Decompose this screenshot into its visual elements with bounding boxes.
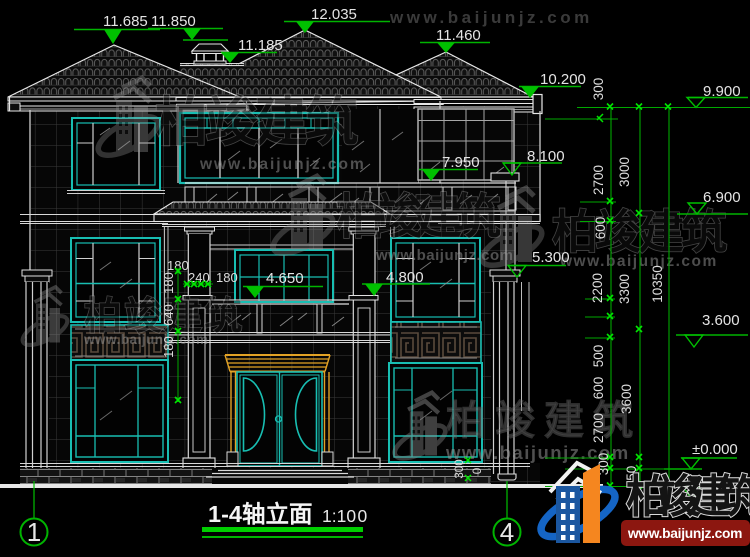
svg-text:300: 300	[591, 78, 606, 101]
svg-text:180: 180	[161, 336, 176, 358]
svg-text:640: 640	[161, 304, 176, 326]
svg-text:www.baijunjz.com: www.baijunjz.com	[375, 247, 513, 264]
svg-text:2700: 2700	[591, 165, 606, 195]
svg-text:www.baijunjz.com: www.baijunjz.com	[83, 332, 209, 347]
svg-text:4: 4	[500, 517, 514, 547]
svg-text:10.200: 10.200	[540, 71, 586, 88]
svg-text:10350: 10350	[650, 265, 665, 303]
svg-text:www.baijunjz.com: www.baijunjz.com	[199, 156, 366, 173]
svg-text:www.baijunjz.com: www.baijunjz.com	[559, 253, 718, 270]
svg-text:11.685: 11.685	[103, 13, 148, 30]
svg-text:柏竣建筑: 柏竣建筑	[626, 471, 750, 522]
svg-text:5.300: 5.300	[532, 249, 570, 266]
svg-text:600: 600	[591, 377, 606, 400]
svg-text:6.900: 6.900	[703, 189, 741, 206]
svg-text:www.baijunjz.com: www.baijunjz.com	[627, 526, 742, 541]
svg-text:3.600: 3.600	[702, 312, 740, 329]
svg-text:3300: 3300	[617, 274, 632, 304]
svg-text:600: 600	[593, 217, 608, 240]
svg-text:柏竣建筑: 柏竣建筑	[336, 191, 501, 244]
svg-text:11.460: 11.460	[436, 27, 481, 44]
svg-text:7.950: 7.950	[442, 154, 480, 171]
svg-text:柏竣建筑: 柏竣建筑	[446, 399, 642, 443]
svg-text:180: 180	[216, 270, 238, 285]
svg-text:www.baijunjz.com: www.baijunjz.com	[389, 8, 593, 27]
svg-text:1:10 0: 1:10 0	[322, 506, 368, 526]
svg-text:4.650: 4.650	[266, 270, 304, 287]
svg-text:11.850: 11.850	[151, 13, 196, 30]
svg-text:180: 180	[161, 272, 176, 294]
svg-text:3600: 3600	[619, 384, 634, 414]
svg-text:1: 1	[27, 517, 41, 547]
svg-text:0: 0	[472, 468, 484, 474]
svg-text:柏竣建筑: 柏竣建筑	[155, 93, 358, 152]
svg-text:3000: 3000	[617, 157, 632, 187]
svg-text:2700: 2700	[591, 413, 606, 443]
svg-text:±0.000: ±0.000	[692, 441, 738, 458]
svg-text:300: 300	[454, 459, 466, 478]
svg-text:11.185: 11.185	[238, 37, 283, 54]
svg-text:2200: 2200	[590, 273, 605, 303]
svg-text:500: 500	[591, 345, 606, 368]
svg-text:12.035: 12.035	[311, 6, 357, 23]
svg-text:1-4轴立面: 1-4轴立面	[208, 500, 312, 527]
